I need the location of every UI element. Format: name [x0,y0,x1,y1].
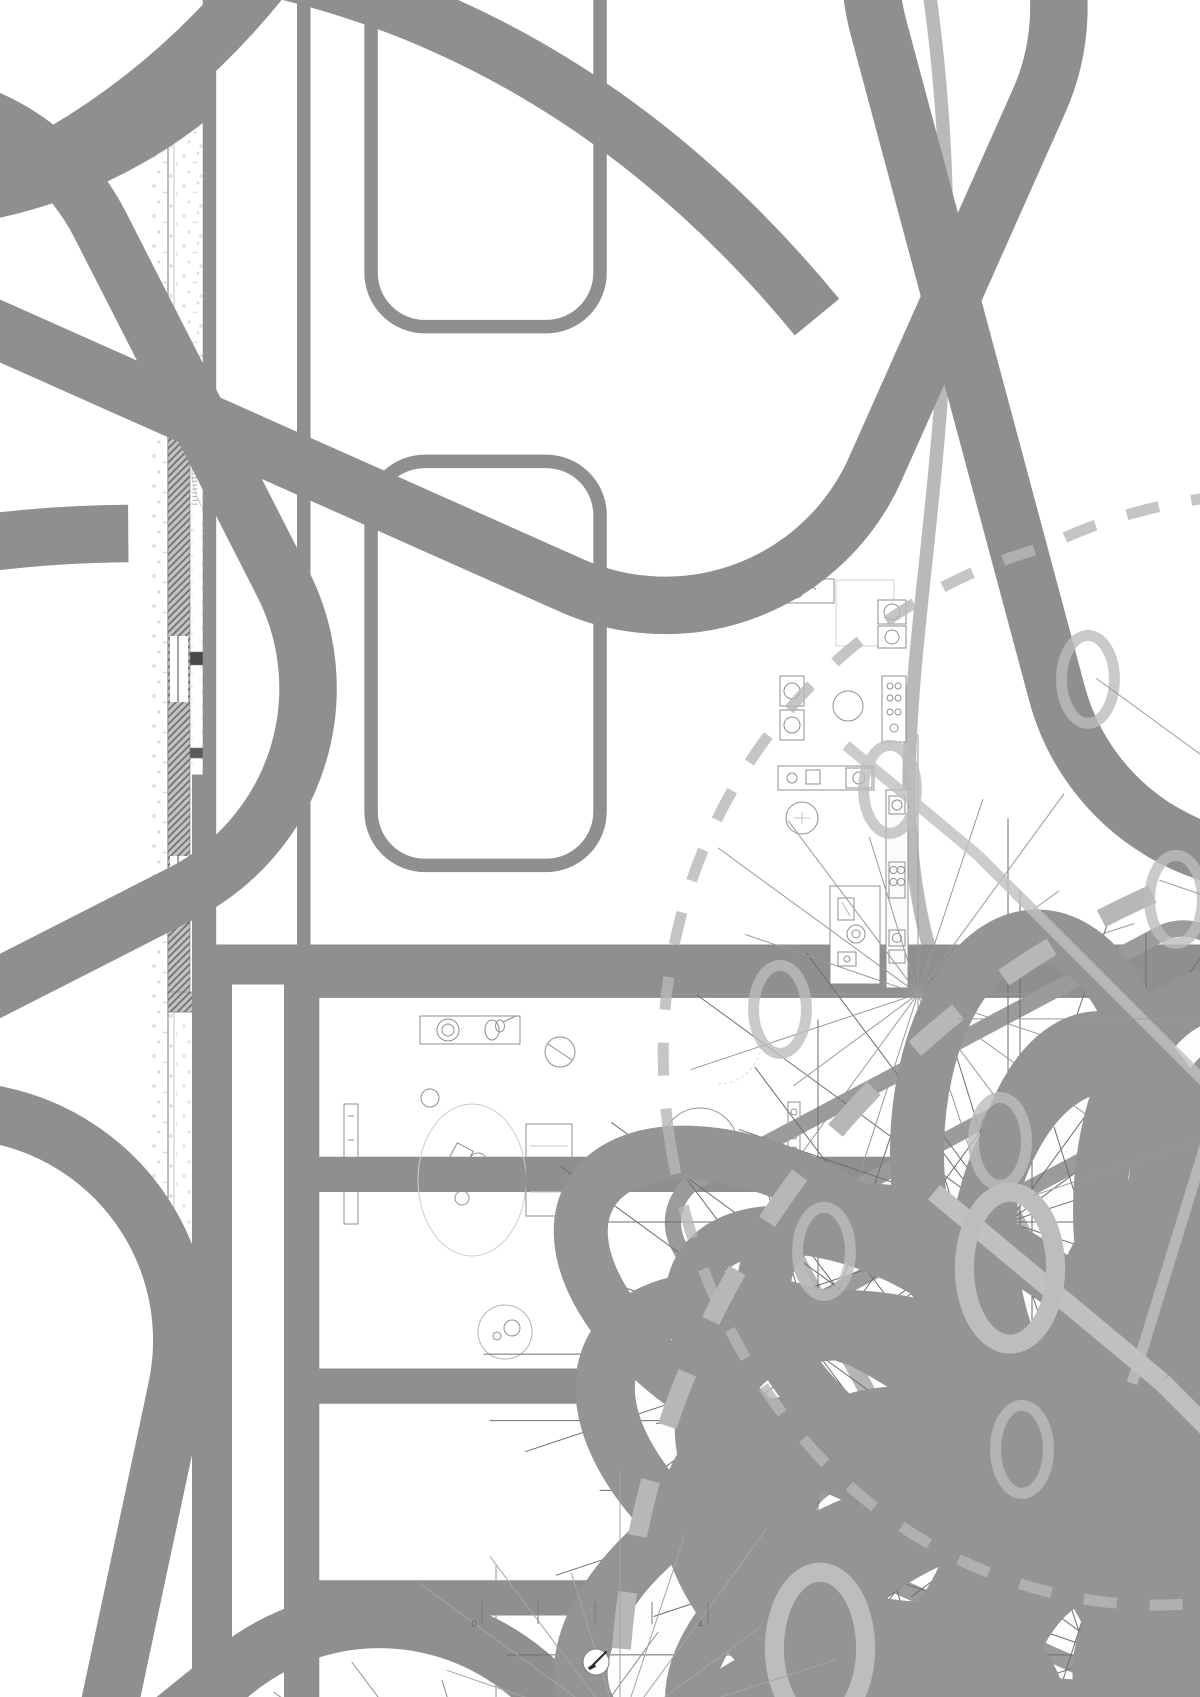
floor-plan-canvas: 0 4 [0,0,1200,1697]
scale-end-label: 4 [697,1620,703,1630]
plan-sheet: 0 4 [0,0,1200,1697]
north-arrow-icon [583,1649,609,1675]
scale-start-label: 0 [471,1620,477,1630]
